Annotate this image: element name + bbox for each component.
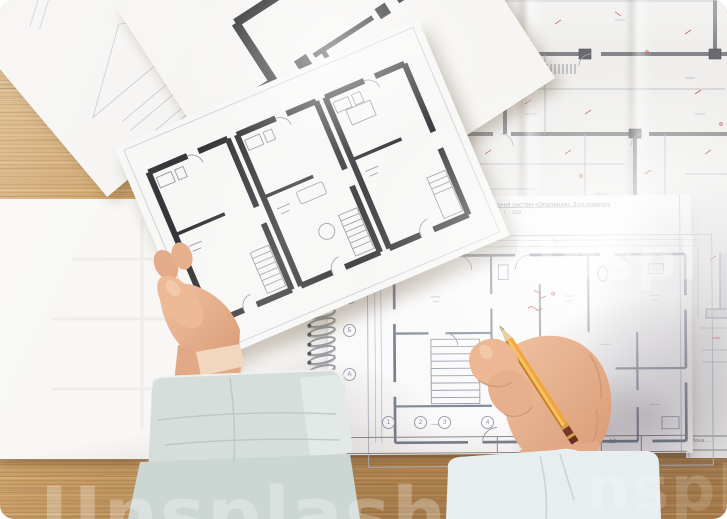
grid-bubble: А: [343, 368, 356, 381]
sheet-number: 13: [609, 438, 617, 445]
wood-plank-seam: [0, 487, 727, 489]
grid-bubble: 1: [382, 416, 395, 429]
grid-bubble: 4: [481, 416, 494, 429]
grid-bubble: Б: [343, 324, 356, 337]
grid-bubble: 2: [414, 416, 427, 429]
title-block-divider: [601, 436, 602, 451]
title-block-label: Підпис: [559, 440, 577, 446]
title-block-strip: Підпис 13: [347, 435, 687, 454]
grid-bubble: 3: [438, 416, 451, 429]
title-block-divider: [641, 436, 642, 451]
title-block-divider: [497, 437, 498, 452]
photo-architect-desk: Зона ...: [0, 0, 727, 519]
